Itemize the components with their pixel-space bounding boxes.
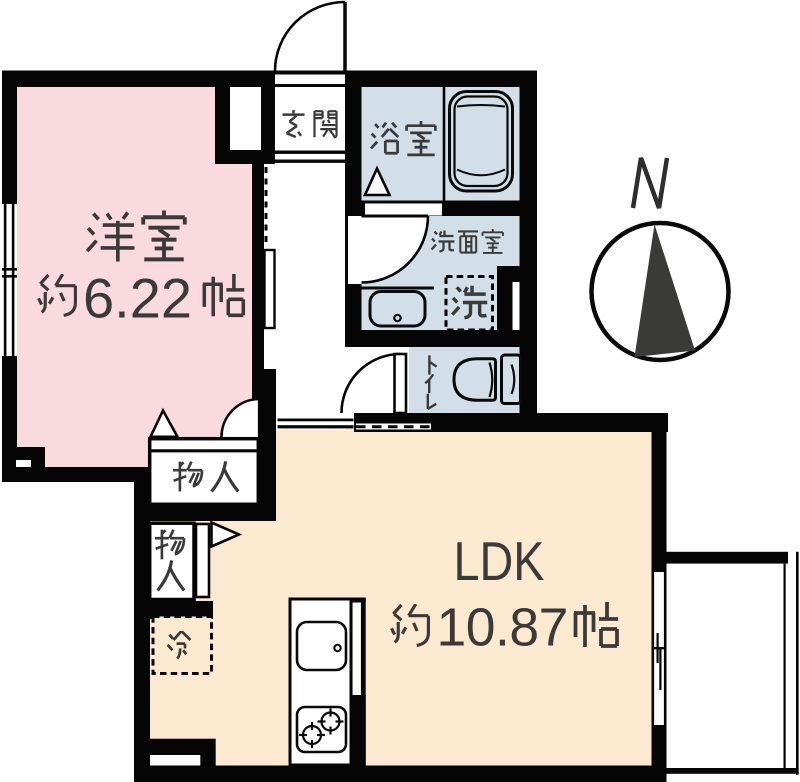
svg-text:6.22: 6.22 xyxy=(83,267,192,330)
svg-text:LDK: LDK xyxy=(454,530,545,591)
svg-text:10.87: 10.87 xyxy=(437,599,568,658)
